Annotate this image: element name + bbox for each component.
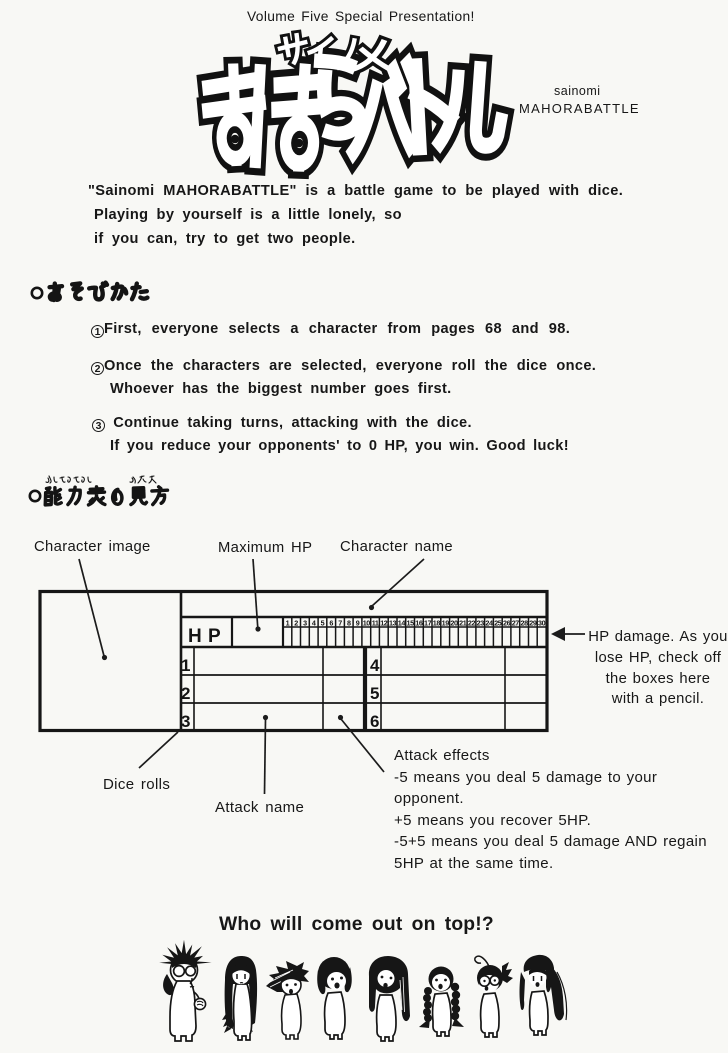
svg-text:H: H — [188, 626, 202, 647]
svg-text:17: 17 — [424, 619, 432, 628]
svg-text:13: 13 — [389, 619, 397, 628]
svg-text:24: 24 — [485, 619, 493, 628]
svg-text:15: 15 — [406, 619, 414, 628]
svg-text:27: 27 — [512, 619, 520, 628]
svg-text:29: 29 — [529, 619, 537, 628]
svg-text:21: 21 — [459, 619, 467, 628]
svg-text:19: 19 — [442, 619, 450, 628]
svg-text:7: 7 — [338, 619, 342, 628]
svg-text:2: 2 — [181, 684, 190, 703]
svg-text:5: 5 — [321, 619, 325, 628]
svg-text:25: 25 — [494, 619, 502, 628]
svg-text:4: 4 — [370, 656, 380, 675]
svg-text:20: 20 — [450, 619, 458, 628]
svg-text:14: 14 — [398, 619, 406, 628]
svg-text:1: 1 — [181, 656, 190, 675]
svg-text:4: 4 — [312, 619, 316, 628]
svg-text:8: 8 — [347, 619, 351, 628]
svg-text:P: P — [208, 626, 221, 647]
svg-text:2: 2 — [294, 619, 298, 628]
svg-text:12: 12 — [380, 619, 388, 628]
svg-text:23: 23 — [477, 619, 485, 628]
svg-text:18: 18 — [433, 619, 441, 628]
svg-text:1: 1 — [286, 619, 290, 628]
svg-text:6: 6 — [329, 619, 333, 628]
svg-text:3: 3 — [181, 712, 190, 731]
svg-text:26: 26 — [503, 619, 511, 628]
svg-text:22: 22 — [468, 619, 476, 628]
svg-text:16: 16 — [415, 619, 423, 628]
svg-text:6: 6 — [370, 712, 379, 731]
svg-text:9: 9 — [356, 619, 360, 628]
svg-text:10: 10 — [363, 619, 371, 628]
svg-text:28: 28 — [520, 619, 528, 628]
svg-text:5: 5 — [370, 684, 379, 703]
svg-text:3: 3 — [303, 619, 307, 628]
svg-text:11: 11 — [372, 619, 379, 628]
svg-text:30: 30 — [538, 619, 546, 628]
